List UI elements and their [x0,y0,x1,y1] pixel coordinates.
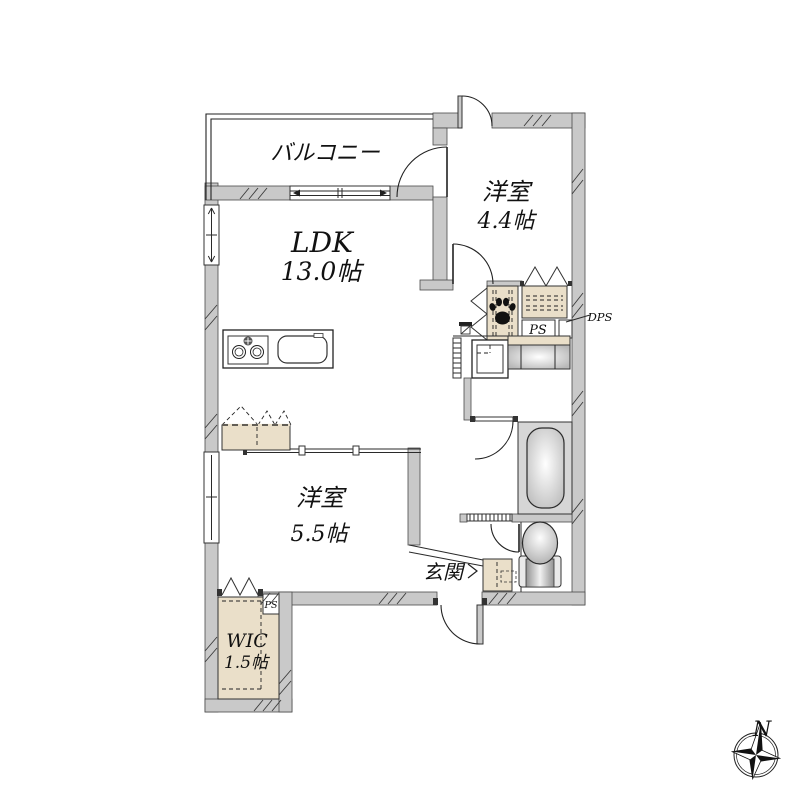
room-size-bedroom1: 4.4帖 [477,209,538,234]
room-label-ldk: LDK [290,226,355,259]
folding-door-ldk-closet [222,406,291,425]
shoe-cabinet [483,559,512,591]
pleated-door-hall-washroom [467,514,512,521]
window-ldk-left [204,205,219,265]
bedroom1-room-door [453,244,493,284]
folding-door-paw-closet [471,288,487,340]
washbasin-icon [508,336,570,369]
ldk-closet [222,425,290,450]
bedroom1-exterior-door [458,96,492,128]
washing-machine-icon [472,340,508,378]
room-label-bedroom1: 洋室 [482,178,533,206]
washroom-door [470,416,518,459]
folding-door-bedroom1-closet [520,267,572,286]
dps-label: DPS [587,310,613,324]
faucet-icon [459,322,472,334]
room-size-wic: 1.5帖 [224,653,271,673]
window-bedroom2-left [204,452,219,543]
entrance-arrow-icon [468,564,477,578]
paw-closet [487,286,518,342]
sink-icon [278,334,327,364]
compass-north-label: N [752,717,772,741]
room-label-balcony: バルコニー [270,141,381,166]
room-label-entrance: 玄関 [423,560,466,584]
bathroom [518,422,572,514]
room-label-bedroom2: 洋室 [296,484,347,512]
bathtub-icon [527,428,564,508]
floor-plan-drawing: バルコニー 洋室 4.4帖 LDK 13.0帖 洋室 5.5帖 WIC 1.5帖… [0,0,800,800]
room-size-bedroom2: 5.5帖 [291,522,351,547]
floor-plan-canvas: バルコニー 洋室 4.4帖 LDK 13.0帖 洋室 5.5帖 WIC 1.5帖… [0,0,800,800]
wic-ps-label: PS [264,600,278,611]
room-size-ldk: 13.0帖 [281,257,365,286]
folding-door-wic [217,578,263,596]
bedroom1-closet [522,286,567,318]
stove-icon [228,336,268,364]
entrance-door [433,598,487,644]
window-balcony-sliding [290,186,390,200]
room-label-wic: WIC [226,630,268,652]
pleated-door-washroom-west [453,338,461,378]
kitchen-counter [223,330,333,368]
ps-label: PS [528,323,547,338]
